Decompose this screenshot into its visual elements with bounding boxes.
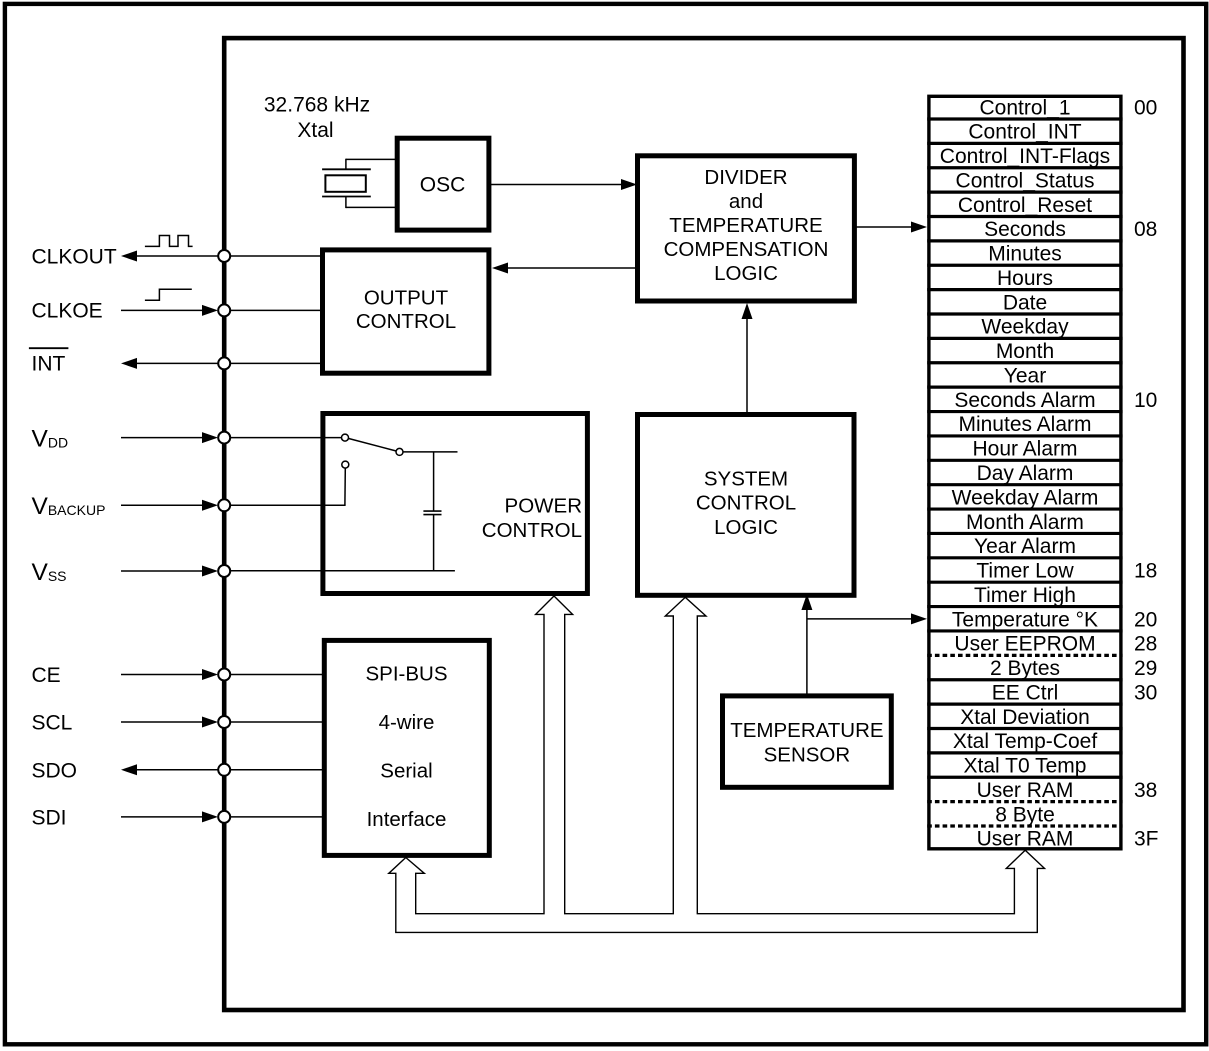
svg-text:2 Bytes: 2 Bytes — [990, 657, 1060, 680]
svg-text:Serial: Serial — [380, 759, 432, 782]
svg-text:Hour Alarm: Hour Alarm — [972, 438, 1077, 461]
svg-text:Weekday Alarm: Weekday Alarm — [952, 486, 1099, 509]
svg-text:Weekday: Weekday — [981, 316, 1069, 339]
svg-text:TEMPERATURE: TEMPERATURE — [730, 719, 883, 742]
svg-text:LOGIC: LOGIC — [714, 516, 778, 539]
svg-text:3F: 3F — [1134, 828, 1159, 851]
svg-text:Month: Month — [996, 340, 1054, 363]
svg-text:DIVIDER: DIVIDER — [704, 166, 787, 189]
svg-text:10: 10 — [1134, 389, 1157, 412]
svg-text:SDI: SDI — [32, 806, 67, 829]
svg-text:Xtal Deviation: Xtal Deviation — [960, 706, 1090, 729]
svg-text:8 Byte: 8 Byte — [995, 803, 1055, 826]
svg-text:4-wire: 4-wire — [379, 711, 435, 734]
svg-text:29: 29 — [1134, 657, 1157, 680]
svg-text:User RAM: User RAM — [977, 828, 1074, 851]
svg-text:Control_Reset: Control_Reset — [958, 194, 1092, 217]
svg-text:20: 20 — [1134, 608, 1157, 631]
svg-text:SCL: SCL — [32, 712, 73, 735]
svg-text:SDO: SDO — [32, 759, 78, 782]
svg-text:SENSOR: SENSOR — [764, 743, 851, 766]
svg-text:OUTPUT: OUTPUT — [364, 287, 449, 310]
svg-text:Minutes Alarm: Minutes Alarm — [958, 413, 1091, 436]
svg-text:CLKOE: CLKOE — [32, 300, 103, 323]
svg-text:CONTROL: CONTROL — [482, 519, 582, 542]
svg-text:CONTROL: CONTROL — [696, 492, 796, 515]
svg-text:Year Alarm: Year Alarm — [974, 535, 1076, 558]
svg-text:SYSTEM: SYSTEM — [704, 467, 788, 490]
svg-text:Control_Status: Control_Status — [956, 169, 1095, 192]
svg-text:00: 00 — [1134, 96, 1157, 119]
svg-text:CONTROL: CONTROL — [356, 310, 456, 333]
svg-text:Year: Year — [1004, 365, 1046, 388]
svg-text:Control_INT-Flags: Control_INT-Flags — [940, 145, 1110, 168]
svg-text:POWER: POWER — [505, 495, 582, 518]
svg-text:and: and — [729, 190, 763, 213]
svg-text:Minutes: Minutes — [988, 243, 1062, 266]
svg-text:CLKOUT: CLKOUT — [32, 246, 117, 269]
svg-text:28: 28 — [1134, 633, 1157, 656]
svg-text:Day Alarm: Day Alarm — [977, 462, 1074, 485]
svg-text:Month Alarm: Month Alarm — [966, 511, 1084, 534]
svg-text:CE: CE — [32, 664, 61, 687]
svg-text:Control_INT: Control_INT — [968, 121, 1081, 144]
svg-text:User EEPROM: User EEPROM — [954, 633, 1095, 656]
svg-text:OSC: OSC — [420, 173, 466, 196]
svg-text:Control_1: Control_1 — [979, 96, 1070, 119]
svg-text:30: 30 — [1134, 681, 1157, 704]
svg-text:Seconds: Seconds — [984, 218, 1066, 241]
svg-text:Date: Date — [1003, 291, 1047, 314]
svg-text:EE Ctrl: EE Ctrl — [992, 681, 1059, 704]
svg-text:Temperature °K: Temperature °K — [952, 608, 1098, 631]
svg-text:COMPENSATION: COMPENSATION — [664, 238, 829, 261]
svg-text:Hours: Hours — [997, 267, 1053, 290]
svg-text:User RAM: User RAM — [977, 779, 1074, 802]
svg-text:18: 18 — [1134, 560, 1157, 583]
svg-text:Interface: Interface — [367, 808, 447, 831]
svg-text:Xtal: Xtal — [297, 119, 333, 142]
svg-text:Xtal T0 Temp: Xtal T0 Temp — [964, 755, 1087, 778]
svg-text:Seconds Alarm: Seconds Alarm — [954, 389, 1095, 412]
svg-text:08: 08 — [1134, 218, 1157, 241]
svg-text:38: 38 — [1134, 779, 1157, 802]
svg-text:INT: INT — [32, 353, 66, 376]
svg-text:TEMPERATURE: TEMPERATURE — [669, 214, 822, 237]
svg-text:Timer Low: Timer Low — [976, 560, 1074, 583]
svg-text:32.768 kHz: 32.768 kHz — [264, 93, 370, 116]
svg-text:Xtal Temp-Coef: Xtal Temp-Coef — [953, 730, 1098, 753]
svg-text:LOGIC: LOGIC — [714, 262, 778, 285]
svg-text:Timer High: Timer High — [974, 584, 1076, 607]
svg-text:SPI-BUS: SPI-BUS — [365, 662, 447, 685]
